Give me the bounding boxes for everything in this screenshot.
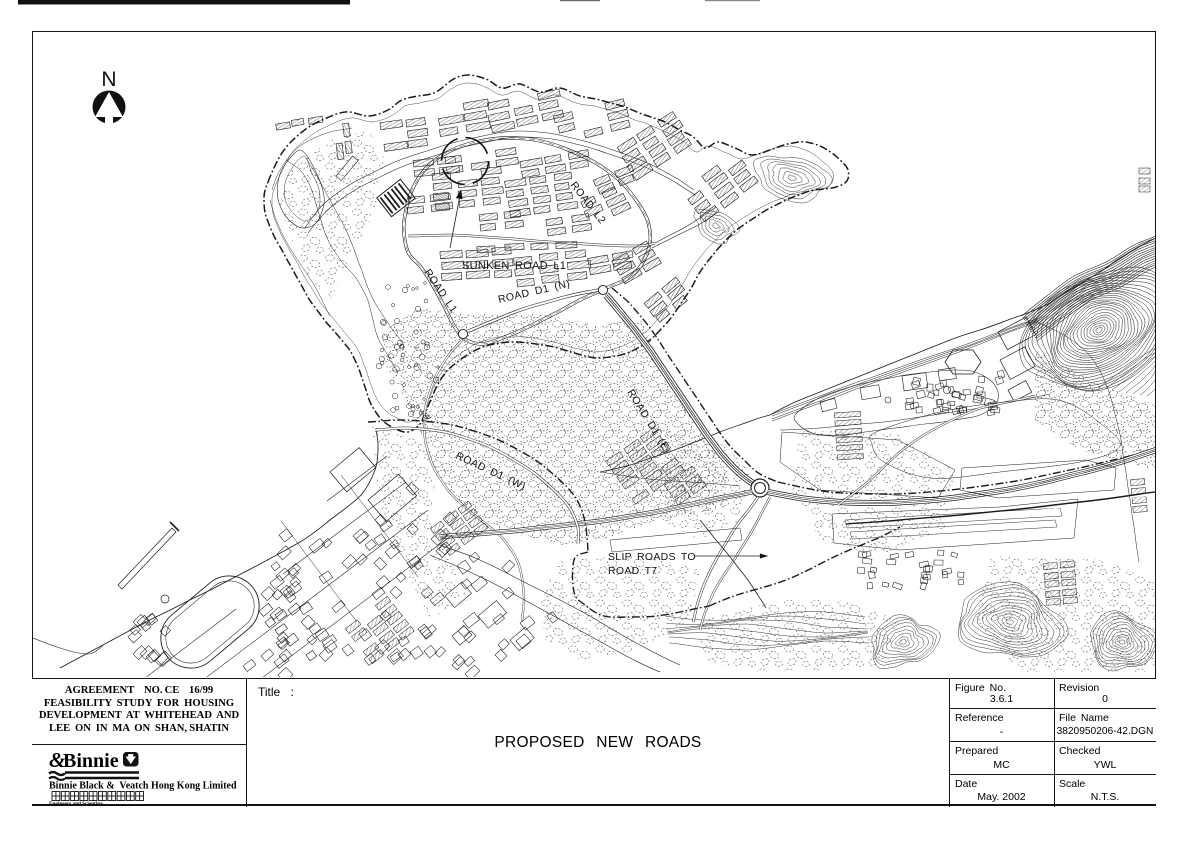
svg-text:Binnie Black & Veatch Hong Ko: Binnie Black & Veatch Hong Kong Limited — [49, 781, 237, 792]
svg-text:Binnie: Binnie — [63, 750, 119, 772]
svg-text:Engineers and Scientists: Engineers and Scientists — [49, 801, 103, 806]
